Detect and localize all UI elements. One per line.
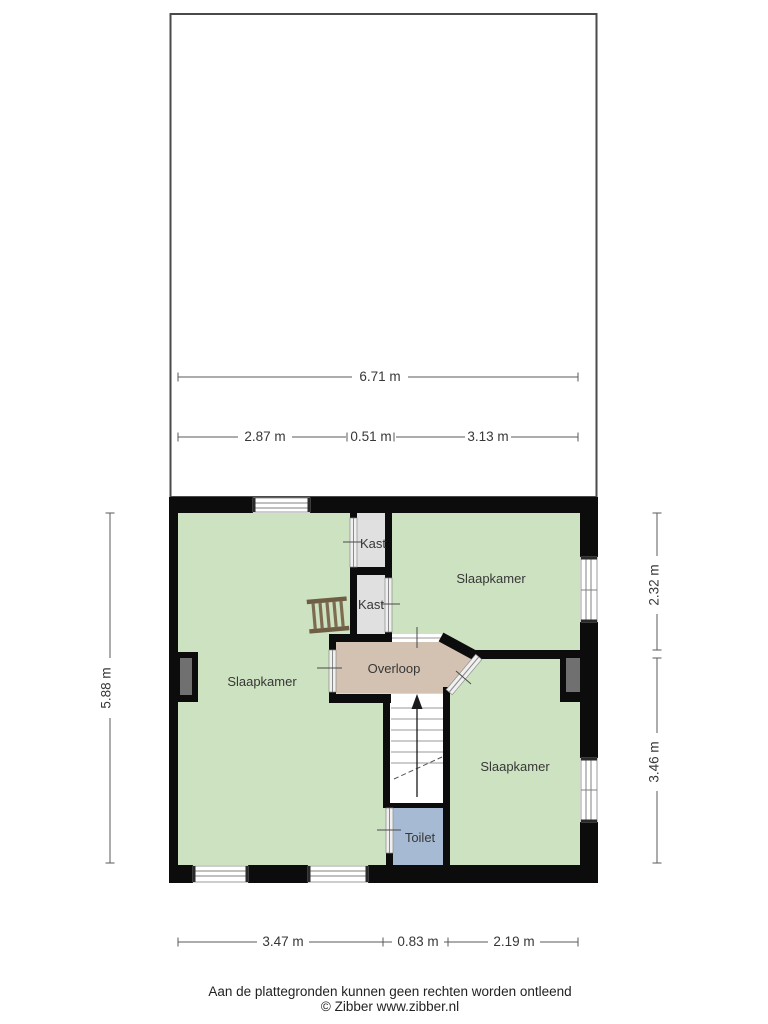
floorplan-page: 6.71 m 2.87 m 0.51 m 3.13 m bbox=[0, 0, 768, 1024]
door-kast-bottom bbox=[385, 578, 392, 632]
dimension-label-attic-seg-mid: 0.51 m bbox=[350, 429, 391, 444]
dimension-label-bottom-right: 2.19 m bbox=[493, 934, 534, 949]
dimension-label-right-top: 2.32 m bbox=[647, 564, 662, 605]
dimension-label-attic-total: 6.71 m bbox=[359, 369, 400, 384]
floor-plan-svg: 6.71 m 2.87 m 0.51 m 3.13 m bbox=[0, 0, 768, 1024]
footer-copyright: © Zibber www.zibber.nl bbox=[321, 999, 459, 1014]
room-label-overloop: Overloop bbox=[368, 661, 421, 676]
door-overloop-left bbox=[329, 650, 336, 692]
room-label-kast-top: Kast bbox=[360, 536, 386, 551]
room-label-slaapkamer-bottom-right: Slaapkamer bbox=[480, 759, 550, 774]
window-bottom-wall-left bbox=[193, 866, 248, 882]
window-bottom-wall-mid bbox=[308, 866, 368, 882]
footer-disclaimer: Aan de plattegronden kunnen geen rechten… bbox=[208, 984, 571, 999]
window-top-wall bbox=[253, 498, 310, 512]
dimension-label-attic-seg-right: 3.13 m bbox=[467, 429, 508, 444]
dimension-label-bottom-mid: 0.83 m bbox=[397, 934, 438, 949]
dimension-label-attic-seg-left: 2.87 m bbox=[244, 429, 285, 444]
window-right-wall-top bbox=[581, 557, 597, 622]
dimension-label-right-bottom: 3.46 m bbox=[647, 741, 662, 782]
dimension-label-bottom-left: 3.47 m bbox=[262, 934, 303, 949]
room-label-toilet: Toilet bbox=[405, 830, 436, 845]
chimney-left bbox=[178, 652, 198, 702]
room-label-slaapkamer-left: Slaapkamer bbox=[227, 674, 297, 689]
room-label-slaapkamer-top-right: Slaapkamer bbox=[456, 571, 526, 586]
room-label-kast-bottom: Kast bbox=[358, 597, 384, 612]
dimension-label-left: 5.88 m bbox=[99, 667, 114, 708]
room-fills bbox=[178, 513, 580, 865]
attic-outline bbox=[171, 14, 597, 497]
attic-space: 6.71 m 2.87 m 0.51 m 3.13 m bbox=[171, 14, 597, 497]
window-right-wall-bottom bbox=[581, 758, 597, 822]
chimney-right bbox=[560, 652, 580, 702]
